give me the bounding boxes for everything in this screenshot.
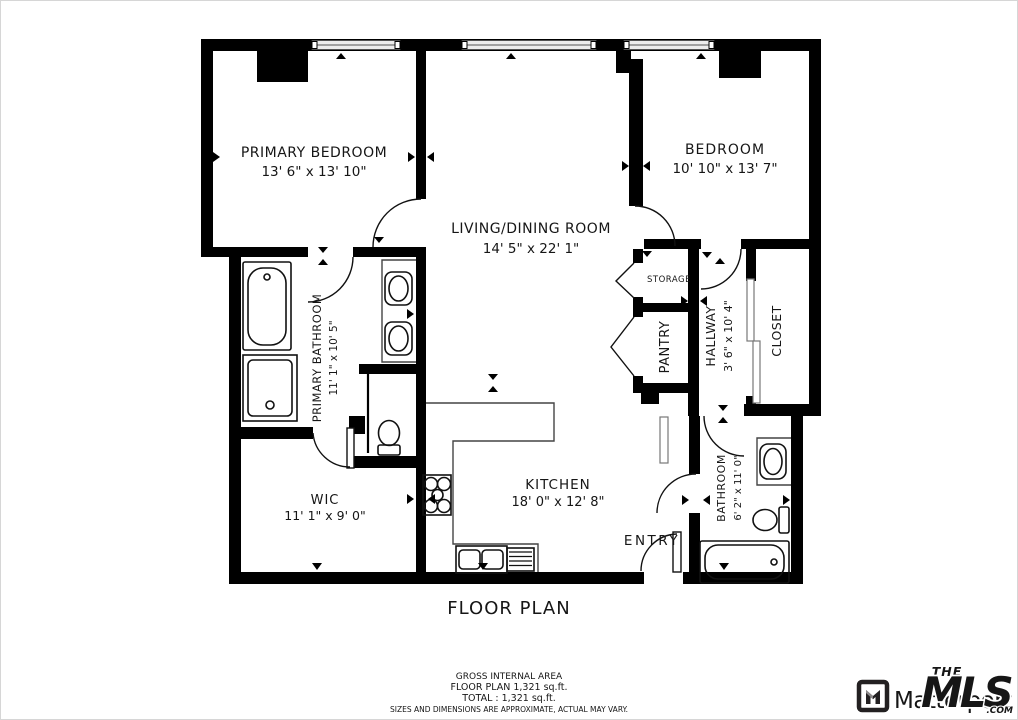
label-wic: WIC bbox=[311, 493, 340, 508]
matterport-logo-icon bbox=[859, 682, 887, 710]
kitchen-sink bbox=[456, 546, 534, 573]
dims-primary-bathroom: 11' 1" x 10' 5" bbox=[328, 320, 340, 395]
closet-sliding-door-1 bbox=[747, 279, 754, 341]
door-entry-bathroom bbox=[657, 474, 696, 513]
dims-primary-bedroom: 13' 6" x 13' 10" bbox=[261, 164, 366, 180]
dims-hallway: 3' 6" x 10' 4" bbox=[722, 300, 735, 372]
storage-bifold-door bbox=[616, 263, 634, 298]
themls-logo-com: .COM bbox=[986, 706, 1013, 716]
footer-floor-plan-area: FLOOR PLAN 1,321 sq.ft. bbox=[451, 682, 568, 693]
dims-kitchen: 18' 0" x 12' 8" bbox=[512, 495, 605, 510]
windows bbox=[311, 40, 715, 50]
branding: Matterport THE MLS ™ .COM bbox=[859, 664, 1013, 717]
label-kitchen: KITCHEN bbox=[525, 477, 591, 493]
themls-logo: THE MLS ™ .COM bbox=[921, 664, 1013, 717]
room-labels: PRIMARY BEDROOM 13' 6" x 13' 10" LIVING/… bbox=[241, 142, 784, 549]
pantry-bifold-door bbox=[611, 317, 634, 376]
footer-total-area: TOTAL : 1,321 sq.ft. bbox=[461, 693, 556, 704]
dims-bedroom: 10' 10" x 13' 7" bbox=[672, 161, 777, 177]
footer: GROSS INTERNAL AREA FLOOR PLAN 1,321 sq.… bbox=[390, 672, 628, 714]
label-bathroom: BATHROOM bbox=[715, 454, 728, 522]
kitchen-stove bbox=[423, 475, 451, 515]
page-title: FLOOR PLAN bbox=[447, 598, 570, 619]
label-entry: ENTRY bbox=[624, 533, 680, 549]
primary-shower bbox=[243, 355, 297, 421]
hall-closet-slider bbox=[660, 417, 668, 463]
window-bedroom bbox=[623, 40, 715, 50]
label-living-dining: LIVING/DINING ROOM bbox=[451, 221, 611, 237]
door-wic bbox=[313, 433, 350, 467]
primary-toilet bbox=[378, 421, 400, 456]
bathroom-vanity bbox=[757, 438, 791, 485]
window-living-room bbox=[461, 40, 597, 50]
label-bedroom: BEDROOM bbox=[685, 142, 765, 158]
themls-logo-tm: ™ bbox=[1002, 678, 1009, 686]
window-primary-bedroom bbox=[311, 40, 401, 50]
footer-gross-internal-area: GROSS INTERNAL AREA bbox=[456, 672, 563, 682]
primary-vanity-sinks bbox=[382, 260, 416, 362]
bathroom-toilet bbox=[753, 507, 789, 533]
dims-wic: 11' 1" x 9' 0" bbox=[284, 508, 365, 523]
wic-door-leaf bbox=[347, 428, 354, 468]
label-storage: STORAGE bbox=[647, 275, 691, 285]
closet-sliding-door-2 bbox=[753, 341, 760, 403]
dims-living-dining: 14' 5" x 22' 1" bbox=[483, 241, 580, 257]
floor-plan-canvas: PRIMARY BEDROOM 13' 6" x 13' 10" LIVING/… bbox=[1, 1, 1017, 719]
label-pantry: PANTRY bbox=[658, 321, 673, 374]
label-hallway: HALLWAY bbox=[703, 305, 718, 366]
footer-disclaimer: SIZES AND DIMENSIONS ARE APPROXIMATE, AC… bbox=[390, 705, 628, 714]
label-closet: CLOSET bbox=[769, 305, 784, 357]
primary-bathtub bbox=[243, 262, 291, 350]
label-primary-bedroom: PRIMARY BEDROOM bbox=[241, 145, 387, 161]
label-primary-bathroom: PRIMARY BATHROOM bbox=[310, 294, 324, 423]
dims-bathroom: 6' 2" x 11' 0" bbox=[733, 455, 744, 520]
floor-plan-page: PRIMARY BEDROOM 13' 6" x 13' 10" LIVING/… bbox=[0, 0, 1018, 720]
